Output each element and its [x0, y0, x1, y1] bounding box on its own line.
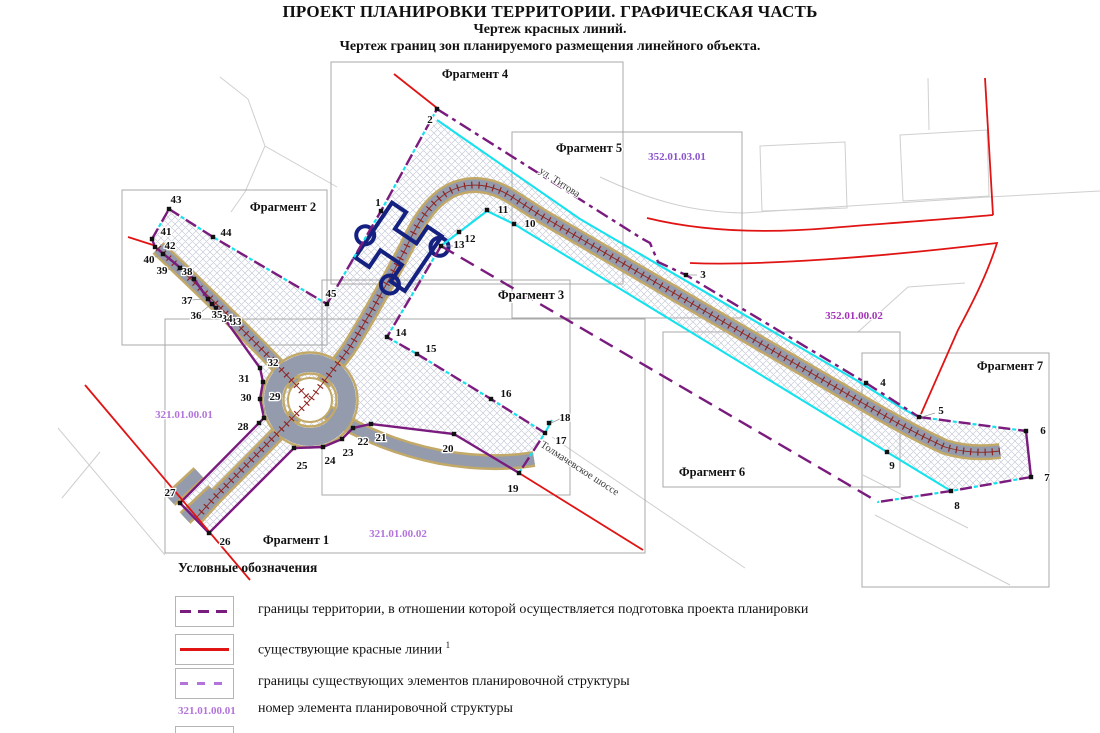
legend-item-structure-boundaries: границы существующих элементов планирово… [258, 674, 630, 690]
boundary-point-label-2: 2 [427, 114, 433, 126]
boundary-point-27 [178, 501, 182, 505]
boundary-point-31 [261, 380, 265, 384]
legend-item-zone-code: номер элемента планировочной структуры [258, 701, 513, 717]
boundary-point-label-31: 31 [239, 373, 250, 385]
boundary-point-29 [262, 416, 266, 420]
boundary-point-label-7: 7 [1044, 472, 1050, 484]
boundary-point-36 [210, 302, 214, 306]
boundary-point-14 [385, 335, 389, 339]
boundary-point-label-41: 41 [161, 226, 172, 238]
boundary-point-label-34: 34 [222, 313, 234, 325]
boundary-point-label-21: 21 [376, 432, 387, 444]
planning-drawing-page: ПРОЕКТ ПЛАНИРОВКИ ТЕРРИТОРИИ. ГРАФИЧЕСКА… [0, 0, 1100, 733]
fragment-7-label: Фрагмент 7 [977, 359, 1043, 373]
boundary-point-24 [321, 445, 325, 449]
boundary-point-23 [340, 437, 344, 441]
boundary-point-label-40: 40 [144, 254, 156, 266]
legend-sample-zone-code: 321.01.00.01 [178, 705, 236, 717]
boundary-point-22 [351, 426, 355, 430]
fragment-2-label: Фрагмент 2 [250, 200, 316, 214]
territory-boundary-line-sample [180, 610, 229, 613]
boundary-point-11 [485, 208, 489, 212]
legend-swatch-structure-boundaries [175, 668, 234, 699]
boundary-point-32 [258, 366, 262, 370]
boundary-point-21 [369, 422, 373, 426]
legend-item-territory-boundary: границы территории, в отношении которой … [258, 602, 808, 618]
legend-footnote-marker: 1 [446, 640, 451, 650]
boundary-point-28 [257, 421, 261, 425]
boundary-point-label-4: 4 [880, 377, 886, 389]
boundary-point-label-28: 28 [238, 421, 250, 433]
structure-boundary-line-sample [180, 682, 229, 685]
legend-item-existing-red-lines-text: существующие красные линии [258, 643, 442, 658]
boundary-point-label-27: 27 [165, 487, 177, 499]
boundary-point-25 [292, 446, 296, 450]
boundary-point-label-29: 29 [270, 391, 282, 403]
boundary-point-label-42: 42 [165, 240, 177, 252]
boundary-point-8 [949, 489, 953, 493]
existing-red-line-sample [180, 648, 229, 651]
legend-swatch-territory-boundary [175, 596, 234, 627]
legend-swatch-existing-red-lines [175, 634, 234, 665]
boundary-point-5 [917, 415, 921, 419]
boundary-point-label-24: 24 [325, 455, 337, 467]
boundary-point-18 [547, 421, 551, 425]
boundary-point-43 [167, 207, 171, 211]
boundary-point-1 [379, 209, 383, 213]
boundary-point-label-43: 43 [171, 194, 183, 206]
boundary-point-label-32: 32 [268, 357, 280, 369]
boundary-point-label-36: 36 [191, 310, 203, 322]
boundary-point-40 [161, 252, 165, 256]
boundary-point-label-3: 3 [700, 269, 706, 281]
boundary-point-label-20: 20 [443, 443, 455, 455]
boundary-point-label-10: 10 [525, 218, 537, 230]
boundary-point-label-12: 12 [465, 233, 477, 245]
boundary-point-label-39: 39 [157, 265, 169, 277]
zone-code-352-01-03-01: 352.01.03.01 [648, 151, 706, 163]
boundary-point-41 [150, 237, 154, 241]
street-tolmachevskoe-label: Толмачевское шоссе [538, 439, 621, 498]
fragment-4-label: Фрагмент 4 [442, 67, 509, 81]
boundary-point-label-11: 11 [498, 204, 508, 216]
boundary-point-label-26: 26 [220, 536, 232, 548]
boundary-point-16 [489, 397, 493, 401]
boundary-point-12 [457, 230, 461, 234]
boundary-point-37 [206, 297, 210, 301]
boundary-point-label-44: 44 [221, 227, 233, 239]
legend-item-existing-red-lines: существующие красные линии 1 [258, 640, 450, 659]
boundary-point-42 [153, 245, 157, 249]
legend-heading: Условные обозначения [178, 560, 317, 576]
boundary-point-26 [207, 531, 211, 535]
fragment-5-label: Фрагмент 5 [556, 141, 622, 155]
boundary-point-44 [211, 235, 215, 239]
zone-code-321-01-00-02: 321.01.00.02 [369, 528, 427, 540]
fragment-6-label: Фрагмент 6 [679, 465, 745, 479]
boundary-point-10 [512, 222, 516, 226]
zone-code-321-01-00-01: 321.01.00.01 [155, 409, 213, 421]
boundary-point-20 [452, 432, 456, 436]
boundary-point-label-5: 5 [938, 405, 944, 417]
fragment-1-label: Фрагмент 1 [263, 533, 329, 547]
boundary-point-4 [864, 381, 868, 385]
boundary-point-label-30: 30 [241, 392, 253, 404]
red-lines-map: 1234567891011121314151617181920212223242… [0, 0, 1100, 733]
boundary-point-label-6: 6 [1040, 425, 1046, 437]
boundary-point-label-38: 38 [182, 266, 194, 278]
boundary-point-label-18: 18 [560, 412, 572, 424]
boundary-point-label-15: 15 [426, 343, 438, 355]
boundary-point-13 [439, 244, 443, 248]
boundary-point-label-19: 19 [508, 483, 520, 495]
boundary-point-label-1: 1 [375, 197, 381, 209]
boundary-point-label-23: 23 [343, 447, 355, 459]
boundary-point-2 [435, 107, 439, 111]
boundary-point-30 [258, 397, 262, 401]
boundary-point-label-25: 25 [297, 460, 309, 472]
boundary-point-45 [325, 302, 329, 306]
boundary-point-39 [178, 266, 182, 270]
boundary-point-label-9: 9 [889, 460, 895, 472]
fragment-3-label: Фрагмент 3 [498, 288, 564, 302]
boundary-point-label-45: 45 [326, 288, 338, 300]
boundary-point-19 [517, 471, 521, 475]
boundary-point-label-37: 37 [182, 295, 194, 307]
boundary-point-6 [1024, 429, 1028, 433]
boundary-point-17 [543, 431, 547, 435]
boundary-point-label-17: 17 [556, 435, 568, 447]
boundary-point-label-16: 16 [501, 388, 513, 400]
boundary-point-label-14: 14 [396, 327, 408, 339]
boundary-point-9 [885, 450, 889, 454]
boundary-point-label-8: 8 [954, 500, 960, 512]
boundary-point-3 [684, 273, 688, 277]
boundary-point-label-35: 35 [212, 309, 224, 321]
legend-swatch-partial [175, 726, 234, 733]
boundary-point-label-13: 13 [454, 239, 466, 251]
boundary-point-7 [1029, 475, 1033, 479]
boundary-point-15 [415, 352, 419, 356]
zone-code-352-01-00-02: 352.01.00.02 [825, 310, 883, 322]
boundary-point-label-22: 22 [358, 436, 370, 448]
